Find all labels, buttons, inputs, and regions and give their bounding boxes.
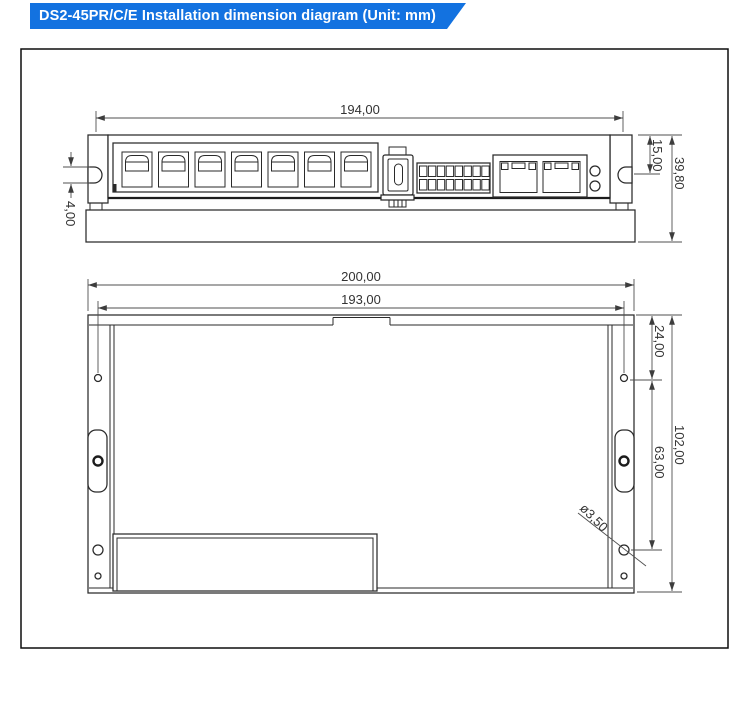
flange-step-left <box>90 203 102 210</box>
flange-step-right <box>616 203 628 210</box>
dim-label-63: 63,00 <box>652 446 667 479</box>
hole-bottom-right <box>621 573 627 579</box>
dim-label-dia-3-5: ø3,50 <box>577 501 611 535</box>
dim-label-39-8: 39,80 <box>672 157 687 190</box>
hole-slot-left <box>94 457 103 466</box>
hole-mid-left <box>93 545 103 555</box>
usb-connector <box>381 147 414 207</box>
hole-top-right <box>621 375 628 382</box>
dim-top-to-hole: 24,00 <box>630 315 682 380</box>
dim-label-193: 193,00 <box>341 292 381 307</box>
dim-label-15: 15,00 <box>650 139 665 172</box>
hole-top-left <box>95 375 102 382</box>
dim-label-4: 4,00 <box>63 201 78 226</box>
terminal-block-mark <box>113 184 117 192</box>
dim-label-200: 200,00 <box>341 269 381 284</box>
dim-hole-spacing-v: 63,00 <box>631 381 667 550</box>
usb-bottom-bracket <box>381 195 414 200</box>
mounting-slot-left <box>88 167 102 183</box>
dim-hole-spacing-h: 193,00 <box>98 292 624 373</box>
base-plate <box>86 210 635 242</box>
mounting-slot-right <box>618 167 632 183</box>
hole-bottom-left <box>95 573 101 579</box>
front-view: 200,00 193,00 24,00 63,00 102,00 <box>88 269 687 593</box>
dim-label-194: 194,00 <box>340 102 380 117</box>
page: { "title_bar": { "text": "DS2-45PR/C/E I… <box>0 0 750 720</box>
hole-slot-right <box>620 457 629 466</box>
mounting-holes-right <box>615 375 634 580</box>
dimension-drawing: 194,00 4,00 15,00 39,80 <box>0 0 750 720</box>
dim-hole-diameter: ø3,50 <box>577 501 646 566</box>
top-view: 194,00 4,00 15,00 39,80 <box>63 102 687 242</box>
dim-label-102: 102,00 <box>672 425 687 465</box>
dim-top-width: 194,00 <box>96 102 623 132</box>
device-body <box>108 135 610 198</box>
heatsink-block <box>113 534 377 591</box>
mounting-holes-left <box>88 375 107 580</box>
dim-label-24: 24,00 <box>652 325 667 358</box>
